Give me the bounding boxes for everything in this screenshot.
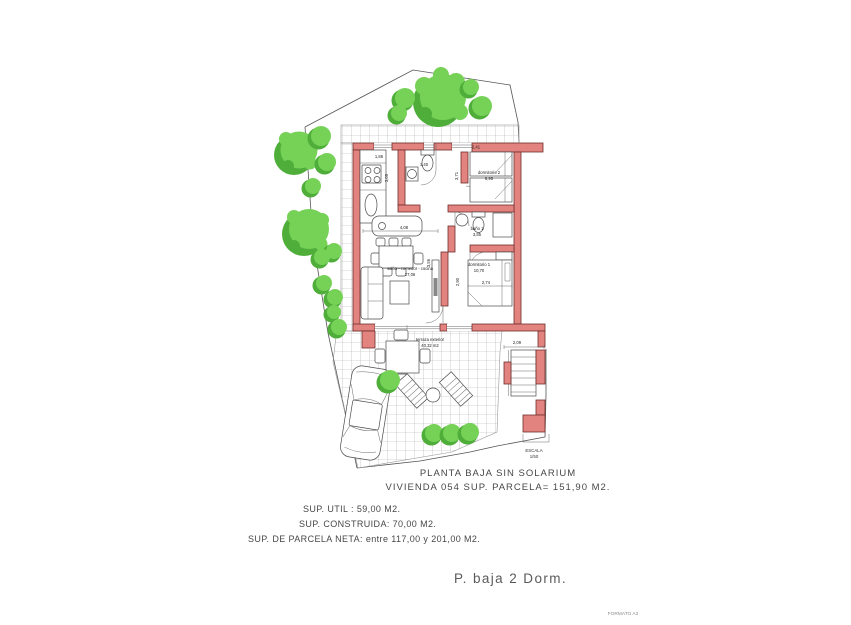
bedroom1-furniture	[468, 252, 512, 306]
room-area-bedroom2: 8,95	[485, 176, 494, 181]
room-label-bath1: baño 1	[471, 226, 484, 231]
format-label: FORMATO A3	[608, 611, 639, 617]
room-label-living: salón - comedor - cocina	[387, 266, 434, 271]
bush-icon	[469, 96, 493, 120]
dimension-label: 2,09	[513, 340, 522, 345]
dimension-label: 3,71	[454, 171, 459, 180]
tree-icon	[282, 209, 329, 256]
chair-icon	[420, 349, 430, 363]
title-block: PLANTA BAJA SIN SOLARIUM VIVIENDA 054 SU…	[386, 468, 611, 493]
dining-table-icon	[379, 246, 413, 268]
site-plan-drawing: 1,86 3,05 1,40 4,08 3,56 2,41 3,71 2,74 …	[0, 0, 851, 625]
kitchen-counter	[360, 150, 422, 246]
room-area-bedroom1: 10,70	[474, 268, 485, 273]
floor-plan-page: 1,86 3,05 1,40 4,08 3,56 2,41 3,71 2,74 …	[0, 0, 851, 625]
stairs	[504, 345, 549, 442]
sup-parcela: SUP. DE PARCELA NETA: entre 117,00 y 201…	[248, 534, 480, 544]
room-label-terrace: terraza exterior	[416, 337, 445, 342]
dimension-label: 1,86	[375, 154, 384, 159]
room-label-bedroom1: dormitorio 1	[468, 262, 491, 267]
sup-construida: SUP. CONSTRUIDA: 70,00 M2.	[299, 519, 436, 529]
tv-icon	[434, 278, 438, 296]
scale-label: ESCALA	[525, 448, 542, 453]
bush-icon	[388, 105, 408, 125]
bush-icon	[302, 178, 322, 198]
tree-icon	[413, 67, 468, 127]
sofa-icon	[361, 267, 383, 319]
wardrobe-icon	[496, 252, 512, 260]
bathroom1-fixtures	[456, 212, 512, 237]
chair-icon	[394, 330, 408, 340]
plan-name: P. baja 2 Dorm.	[454, 571, 567, 586]
bed-icon	[470, 178, 512, 202]
bar-stool-icon	[402, 238, 411, 246]
bar-stool-icon	[376, 238, 385, 246]
chair-icon	[371, 253, 380, 264]
dimension-label: 4,08	[400, 225, 409, 230]
bar-stool-icon	[389, 238, 398, 246]
chair-icon	[414, 253, 423, 264]
dimension-label: 2,90	[455, 277, 460, 286]
coffee-table-icon	[390, 281, 409, 304]
surface-summary: SUP. UTIL : 59,00 M2. SUP. CONSTRUIDA: 7…	[248, 504, 480, 544]
scale-note: ESCALA 1/50	[525, 448, 542, 459]
plan-subtitle: VIVIENDA 054 SUP. PARCELA= 151,90 M2.	[386, 482, 611, 493]
tv-unit	[432, 260, 439, 312]
room-area-bath1: 3,85	[473, 232, 482, 237]
kitchen-peninsula	[372, 216, 422, 236]
washbasin-icon	[456, 214, 468, 226]
plan-title: PLANTA BAJA SIN SOLARIUM	[420, 468, 576, 479]
sup-util: SUP. UTIL : 59,00 M2.	[303, 504, 400, 514]
dimension-label: 2,74	[482, 280, 491, 285]
chair-icon	[375, 349, 385, 363]
toilet-icon	[421, 150, 434, 155]
shower-icon	[493, 213, 512, 237]
dimension-label: 3,05	[384, 173, 389, 182]
scale-value: 1/50	[530, 454, 539, 459]
bush-icon	[308, 126, 332, 150]
dimension-label: 2,41	[472, 145, 481, 150]
room-label-bedroom2: dormitorio 2	[478, 170, 501, 175]
side-table-icon	[426, 388, 440, 402]
room-area-living: 27,06	[405, 272, 416, 277]
dimension-label: 1,40	[420, 162, 429, 167]
toilet-icon	[472, 212, 485, 217]
sofa	[361, 267, 383, 319]
bush-icon	[315, 153, 337, 175]
room-area-terrace: 40,32 m2	[421, 343, 439, 348]
terrace-table-icon	[386, 341, 419, 373]
